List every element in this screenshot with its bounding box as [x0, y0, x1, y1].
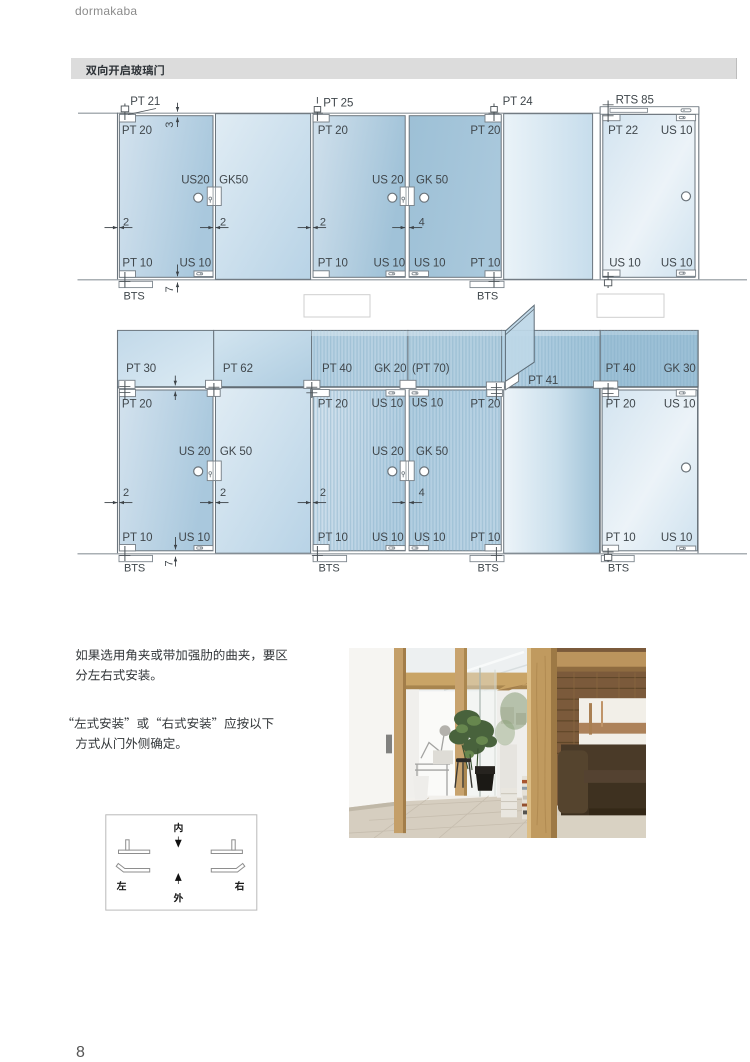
svg-text:US 20: US 20	[372, 175, 403, 187]
svg-text:PT 25: PT 25	[323, 98, 353, 110]
svg-text:GK 50: GK 50	[416, 446, 448, 458]
svg-text:BTS: BTS	[478, 563, 499, 575]
svg-text:2: 2	[220, 216, 226, 228]
svg-text:US 10: US 10	[661, 257, 692, 269]
svg-text:GK 50: GK 50	[416, 175, 448, 187]
svg-text:US 10: US 10	[372, 398, 403, 410]
svg-text:US 10: US 10	[412, 398, 443, 410]
svg-text:US 10: US 10	[661, 125, 692, 137]
svg-text:PT 41: PT 41	[528, 375, 558, 387]
svg-text:2: 2	[123, 487, 129, 499]
svg-text:PT 24: PT 24	[503, 96, 534, 108]
svg-text:7: 7	[164, 560, 176, 566]
svg-text:BTS: BTS	[319, 563, 340, 575]
svg-text:4: 4	[419, 216, 425, 228]
svg-text:GK50: GK50	[219, 175, 248, 187]
svg-text:US 20: US 20	[372, 446, 403, 458]
svg-text:PT 40: PT 40	[606, 363, 636, 375]
svg-text:PT 10: PT 10	[122, 532, 152, 544]
svg-text:(PT 70): (PT 70)	[412, 363, 450, 375]
svg-text:US 10: US 10	[374, 257, 405, 269]
svg-text:GK 50: GK 50	[220, 446, 252, 458]
svg-text:BTS: BTS	[477, 291, 498, 303]
svg-text:PT 10: PT 10	[318, 532, 348, 544]
svg-text:PT 10: PT 10	[318, 257, 348, 269]
svg-text:2: 2	[123, 216, 129, 228]
svg-text:US20: US20	[181, 175, 209, 187]
svg-text:US 10: US 10	[414, 257, 445, 269]
svg-text:PT 20: PT 20	[122, 125, 152, 137]
svg-text:PT 30: PT 30	[126, 363, 156, 375]
svg-text:US 20: US 20	[179, 446, 210, 458]
svg-text:US 10: US 10	[609, 257, 640, 269]
svg-text:GK 30: GK 30	[664, 363, 696, 375]
svg-text:PT 10: PT 10	[470, 257, 500, 269]
svg-text:2: 2	[220, 487, 226, 499]
svg-text:US 10: US 10	[179, 532, 210, 544]
svg-text:US 10: US 10	[414, 532, 445, 544]
svg-text:PT 62: PT 62	[223, 363, 253, 375]
svg-text:RTS 85: RTS 85	[616, 94, 654, 106]
svg-text:US 10: US 10	[372, 532, 403, 544]
svg-text:PT 10: PT 10	[470, 532, 500, 544]
svg-text:PT 20: PT 20	[606, 399, 636, 411]
svg-text:PT 40: PT 40	[322, 363, 352, 375]
svg-text:7: 7	[164, 286, 176, 292]
svg-text:PT 20: PT 20	[470, 399, 500, 411]
svg-text:PT 21: PT 21	[130, 96, 160, 108]
svg-text:US 10: US 10	[661, 532, 692, 544]
svg-text:PT 20: PT 20	[470, 125, 500, 137]
svg-text:US 10: US 10	[180, 257, 211, 269]
svg-text:PT 10: PT 10	[122, 257, 152, 269]
svg-text:3: 3	[164, 122, 176, 128]
svg-text:US 10: US 10	[664, 399, 695, 411]
svg-text:BTS: BTS	[124, 291, 145, 303]
svg-text:GK 20: GK 20	[374, 363, 406, 375]
svg-text:BTS: BTS	[608, 563, 629, 575]
svg-text:PT 20: PT 20	[318, 399, 348, 411]
svg-text:BTS: BTS	[124, 563, 145, 575]
svg-text:2: 2	[320, 487, 326, 499]
svg-text:PT 22: PT 22	[608, 125, 638, 137]
svg-text:PT 10: PT 10	[606, 532, 636, 544]
svg-text:PT 20: PT 20	[318, 125, 348, 137]
svg-text:2: 2	[320, 216, 326, 228]
svg-text:4: 4	[419, 487, 425, 499]
svg-text:PT 20: PT 20	[122, 399, 152, 411]
